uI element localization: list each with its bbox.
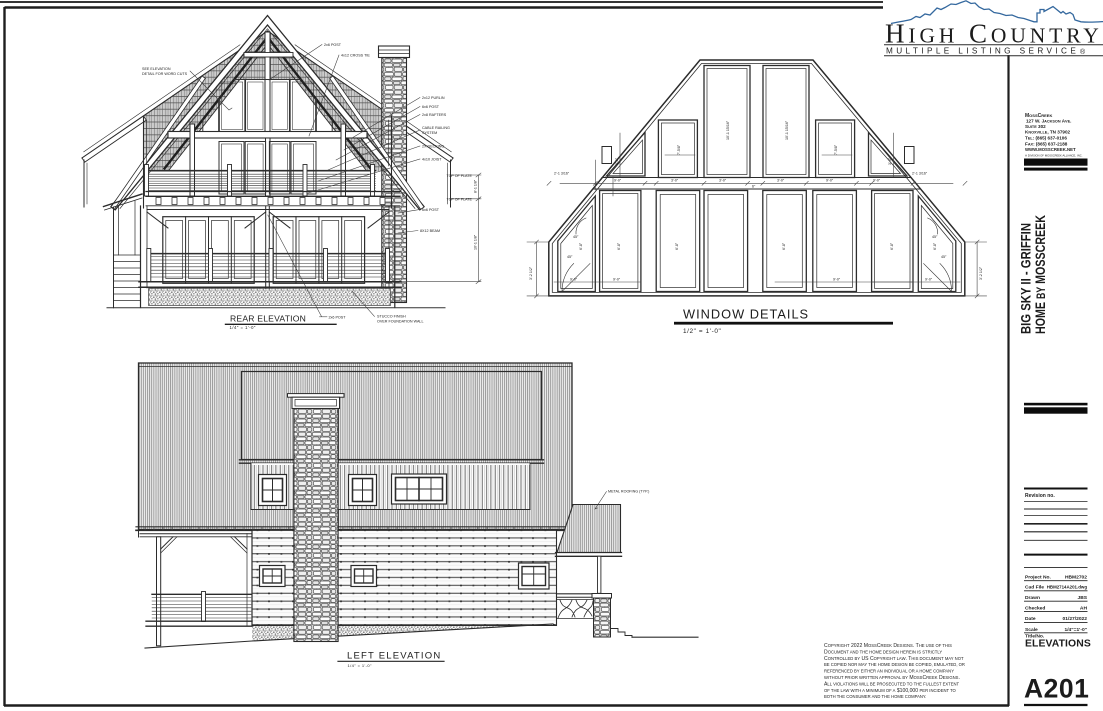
svg-text:3'-0": 3'-0" <box>719 179 727 183</box>
svg-text:KNOXVILLE, TN 37902: KNOXVILLE, TN 37902 <box>1025 130 1070 135</box>
svg-text:1/4" = 1'-0": 1/4" = 1'-0" <box>348 663 372 668</box>
svg-text:A DIVISION OF MOSSCREEK ALLIAN: A DIVISION OF MOSSCREEK ALLIANCE, INC. <box>1025 154 1083 158</box>
svg-text:HIGH COUNTRY: HIGH COUNTRY <box>885 19 1103 49</box>
svg-text:REAR ELEVATION: REAR ELEVATION <box>230 314 306 324</box>
svg-text:REFERENCED BY EITHER AN INDIVI: REFERENCED BY EITHER AN INDIVIDUAL OR A … <box>824 669 954 674</box>
svg-text:4x12 CROSS TIE: 4x12 CROSS TIE <box>341 54 370 58</box>
svg-text:9'-0": 9'-0" <box>614 179 622 183</box>
svg-text:TOP OF PLATE: TOP OF PLATE <box>447 174 473 178</box>
svg-text:CABLE RAILING: CABLE RAILING <box>422 126 450 130</box>
svg-text:3'-6": 3'-6" <box>615 157 619 165</box>
svg-text:10'-1 15/16": 10'-1 15/16" <box>785 120 789 140</box>
svg-text:2x6 POST: 2x6 POST <box>329 315 347 319</box>
svg-text:BOTH THE CONSUMER AND THE HOME: BOTH THE CONSUMER AND THE HOME COMPANY. <box>824 694 926 699</box>
svg-text:DETAIL FOR WORD CUTS: DETAIL FOR WORD CUTS <box>142 72 188 76</box>
svg-text:3'-0": 3'-0" <box>671 179 679 183</box>
svg-text:8X12 BEAM: 8X12 BEAM <box>420 229 440 233</box>
svg-text:FAX: (865) 637-2188: FAX: (865) 637-2188 <box>1025 142 1068 147</box>
svg-text:4x10 JOIST: 4x10 JOIST <box>422 158 442 162</box>
svg-text:2x6 POST: 2x6 POST <box>324 43 342 47</box>
svg-text:®: ® <box>1080 48 1086 56</box>
svg-text:1/4" = 1'-0": 1/4" = 1'-0" <box>230 325 256 330</box>
svg-text:01/27/2022: 01/27/2022 <box>1063 616 1088 622</box>
svg-text:Cad File: Cad File <box>1025 585 1044 591</box>
svg-text:9'-0": 9'-0" <box>873 179 881 183</box>
svg-text:SUITE 302: SUITE 302 <box>1025 124 1046 129</box>
svg-text:2'-1 3/16": 2'-1 3/16" <box>912 172 928 176</box>
svg-text:45°: 45° <box>567 255 573 259</box>
svg-text:6x6 POST: 6x6 POST <box>422 208 440 212</box>
svg-text:Checked: Checked <box>1025 606 1045 612</box>
svg-text:8'-1 1/8": 8'-1 1/8" <box>474 179 478 193</box>
svg-text:Scale: Scale <box>1025 627 1038 633</box>
svg-text:7'-5/8": 7'-5/8" <box>834 144 838 155</box>
svg-text:6'-8": 6'-8" <box>675 242 679 250</box>
svg-text:HOME BY MOSSCREEK: HOME BY MOSSCREEK <box>1032 215 1048 334</box>
svg-text:JBS: JBS <box>1077 595 1087 601</box>
svg-text:3'-0": 3'-0" <box>777 179 785 183</box>
svg-text:2x8 RAFTERS: 2x8 RAFTERS <box>422 113 447 117</box>
svg-text:Date: Date <box>1025 616 1036 622</box>
svg-text:ELEVATIONS: ELEVATIONS <box>1025 639 1091 650</box>
svg-text:Drawn: Drawn <box>1025 595 1040 601</box>
svg-text:45°: 45° <box>941 255 947 259</box>
svg-text:10'-1 15/16": 10'-1 15/16" <box>726 120 730 140</box>
svg-text:METAL ROOFING (TYP.): METAL ROOFING (TYP.) <box>608 490 649 494</box>
svg-text:Project No.: Project No. <box>1025 575 1051 581</box>
svg-text:9'-0": 9'-0" <box>613 277 621 281</box>
svg-text:Revision no.: Revision no. <box>1025 493 1055 499</box>
svg-text:6'-8": 6'-8" <box>890 242 894 250</box>
svg-text:10'-1 1/8": 10'-1 1/8" <box>474 234 478 250</box>
svg-text:TEL: (865) 637-0106: TEL: (865) 637-0106 <box>1025 136 1067 141</box>
svg-text:9'-0": 9'-0" <box>826 179 834 183</box>
svg-text:2x12 PURLIN: 2x12 PURLIN <box>422 96 445 100</box>
svg-text:127 W. JACKSON AVE.: 127 W. JACKSON AVE. <box>1026 119 1071 124</box>
svg-text:WWW.MOSSCREEK.NET: WWW.MOSSCREEK.NET <box>1025 147 1076 152</box>
svg-text:3'-2 1/2": 3'-2 1/2" <box>529 266 533 280</box>
svg-text:WINDOW DETAILS: WINDOW DETAILS <box>683 307 809 322</box>
svg-text:45°: 45° <box>932 235 938 239</box>
svg-text:3'-2 1/2": 3'-2 1/2" <box>979 266 983 280</box>
svg-text:TOP OF PLATE: TOP OF PLATE <box>447 198 473 202</box>
svg-text:1/2" = 1'-0": 1/2" = 1'-0" <box>683 328 721 335</box>
svg-text:2X DECKING: 2X DECKING <box>422 145 444 149</box>
svg-text:STUCCO FINISH: STUCCO FINISH <box>377 315 406 319</box>
svg-text:3'-6": 3'-6" <box>888 157 892 165</box>
svg-text:HBM2714A201.dwg: HBM2714A201.dwg <box>1047 585 1088 590</box>
svg-text:45°: 45° <box>573 235 579 239</box>
svg-text:6'-8": 6'-8" <box>579 242 583 250</box>
svg-text:6'-8": 6'-8" <box>933 242 937 250</box>
svg-text:HBM2702: HBM2702 <box>1065 575 1087 581</box>
svg-text:A201: A201 <box>1024 674 1089 704</box>
svg-text:6x6 POST: 6x6 POST <box>422 105 440 109</box>
svg-text:SEE ELEVATION: SEE ELEVATION <box>142 67 171 71</box>
svg-text:6'-8": 6'-8" <box>617 242 621 250</box>
svg-text:9'-0": 9'-0" <box>925 277 933 281</box>
svg-text:SYSTEM: SYSTEM <box>422 131 437 135</box>
svg-text:LEFT ELEVATION: LEFT ELEVATION <box>347 651 441 662</box>
svg-text:OVER FOUNDATION WALL: OVER FOUNDATION WALL <box>377 320 424 324</box>
svg-text:BE COPIED NOR MAY THE HOME DES: BE COPIED NOR MAY THE HOME DESIGN BE COP… <box>824 662 965 667</box>
svg-text:1/4"=1'-0": 1/4"=1'-0" <box>1064 627 1087 633</box>
svg-text:MULTIPLE LISTING SERVICE: MULTIPLE LISTING SERVICE <box>886 47 1079 56</box>
svg-text:6'-8": 6'-8" <box>782 242 786 250</box>
svg-text:9'-0": 9'-0" <box>833 277 841 281</box>
svg-text:7'-5/8": 7'-5/8" <box>677 144 681 155</box>
svg-text:2'-1 3/16": 2'-1 3/16" <box>554 172 570 176</box>
svg-text:AH: AH <box>1080 606 1088 612</box>
svg-text:9'-0": 9'-0" <box>570 277 578 281</box>
